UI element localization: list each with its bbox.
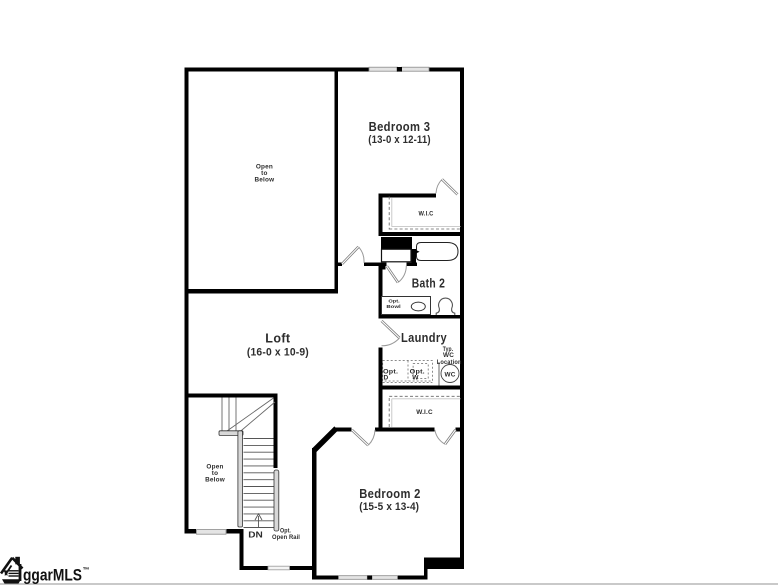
svg-text:WC: WC	[443, 352, 454, 359]
svg-text:Laundry: Laundry	[401, 330, 447, 345]
svg-text:(15-5 x 13-4): (15-5 x 13-4)	[359, 501, 419, 513]
svg-text:Location: Location	[437, 359, 462, 366]
svg-text:Bath 2: Bath 2	[412, 276, 446, 291]
svg-text:W.I.C: W.I.C	[419, 211, 434, 218]
svg-text:Loft: Loft	[265, 332, 291, 346]
svg-text:(16-0 x 10-9): (16-0 x 10-9)	[247, 347, 309, 359]
svg-text:DN: DN	[248, 531, 263, 540]
svg-text:D: D	[384, 374, 389, 381]
svg-text:W.I.C: W.I.C	[416, 409, 433, 416]
svg-text:Bowl: Bowl	[386, 304, 401, 310]
svg-text:W: W	[412, 374, 419, 381]
svg-text:WC: WC	[444, 372, 455, 379]
svg-text:Bedroom 3: Bedroom 3	[369, 119, 431, 134]
svg-text:Bedroom 2: Bedroom 2	[359, 486, 421, 501]
svg-text:Open Rail: Open Rail	[272, 534, 300, 541]
svg-text:™: ™	[83, 567, 90, 574]
svg-text:Opt.: Opt.	[388, 299, 400, 305]
svg-text:(13-0 x 12-11): (13-0 x 12-11)	[368, 134, 431, 146]
svg-text:Below: Below	[254, 176, 274, 183]
svg-text:ggarMLS: ggarMLS	[23, 565, 82, 584]
svg-text:Below: Below	[205, 476, 225, 483]
